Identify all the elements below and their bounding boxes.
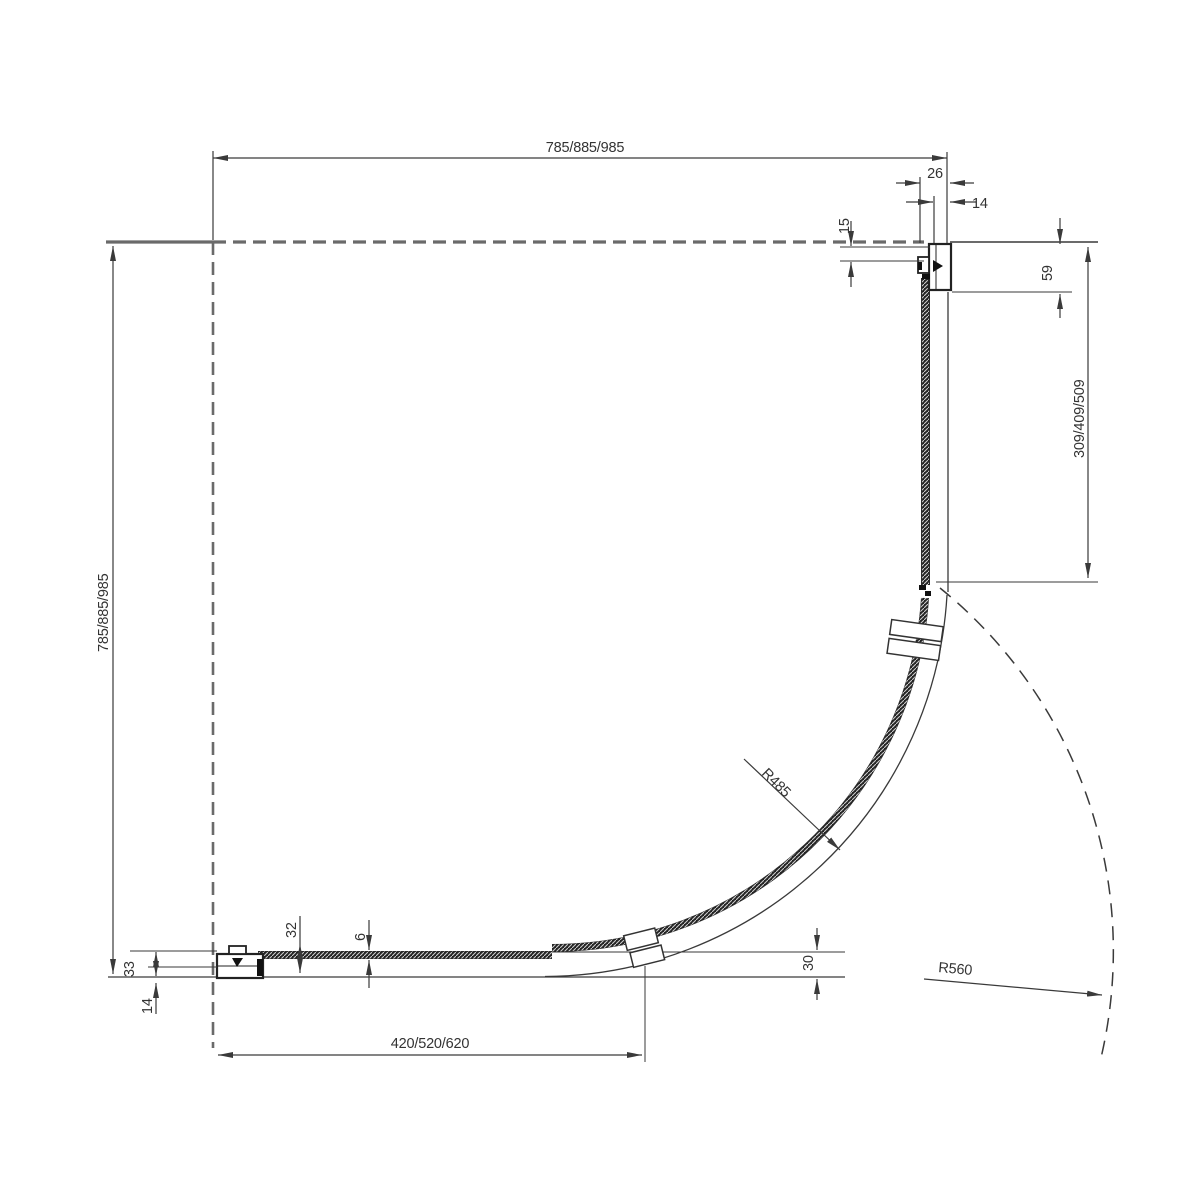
walls xyxy=(106,242,1098,1048)
shower-enclosure-plan-svg: 785/885/985 785/885/985 26 14 15 59 309/… xyxy=(0,0,1200,1200)
label-30: 30 xyxy=(801,955,817,971)
label-r560: R560 xyxy=(938,960,973,979)
profile-tab-mark-top xyxy=(918,262,922,270)
label-14-top: 14 xyxy=(972,196,988,212)
label-bottom-panel: 420/520/620 xyxy=(391,1036,470,1052)
technical-drawing-page: 785/885/985 785/885/985 26 14 15 59 309/… xyxy=(0,0,1200,1200)
hinge-mark-lower xyxy=(925,591,931,596)
profile-tab-bottom xyxy=(229,946,246,954)
label-top-width: 785/885/985 xyxy=(546,140,625,156)
label-14-bottom: 14 xyxy=(140,998,156,1014)
glass-seal-mark-bottom xyxy=(257,959,263,976)
leader-r485 xyxy=(744,759,840,850)
glass-seal-mark-top xyxy=(922,274,930,279)
label-left-height: 785/885/985 xyxy=(96,573,112,652)
label-6: 6 xyxy=(353,933,369,941)
tray-outline xyxy=(108,292,948,977)
door-glass-panel xyxy=(552,598,925,948)
leader-r560 xyxy=(924,979,1102,995)
door-handle xyxy=(887,620,943,661)
door-handle-bar-upper xyxy=(890,620,944,642)
door-handle-bar-lower xyxy=(887,638,941,660)
label-33: 33 xyxy=(122,961,138,977)
hinge-mark-upper xyxy=(919,585,926,590)
label-32: 32 xyxy=(284,922,300,938)
label-26: 26 xyxy=(927,166,943,182)
label-side-panel: 309/409/509 xyxy=(1072,379,1088,458)
bottom-left-wall-profile xyxy=(217,946,263,978)
label-15: 15 xyxy=(837,218,853,234)
glass-panels xyxy=(258,278,934,959)
door-swing-arc xyxy=(940,588,1113,1062)
dimension-lines xyxy=(113,151,1102,1062)
label-r485: R485 xyxy=(758,766,793,801)
label-59: 59 xyxy=(1040,265,1056,281)
